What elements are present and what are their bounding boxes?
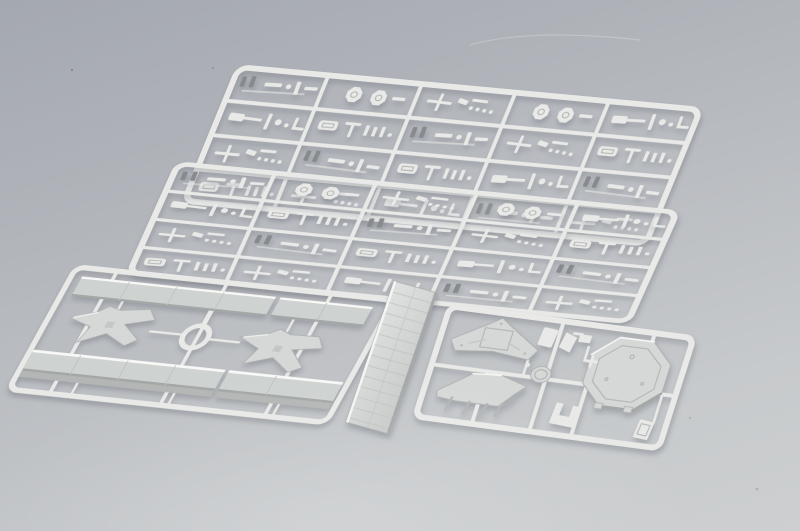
small-box-part [578,334,592,343]
photo-backdrop [0,0,800,531]
sprue-photo [0,0,800,531]
sprue-superstructure [415,306,693,448]
